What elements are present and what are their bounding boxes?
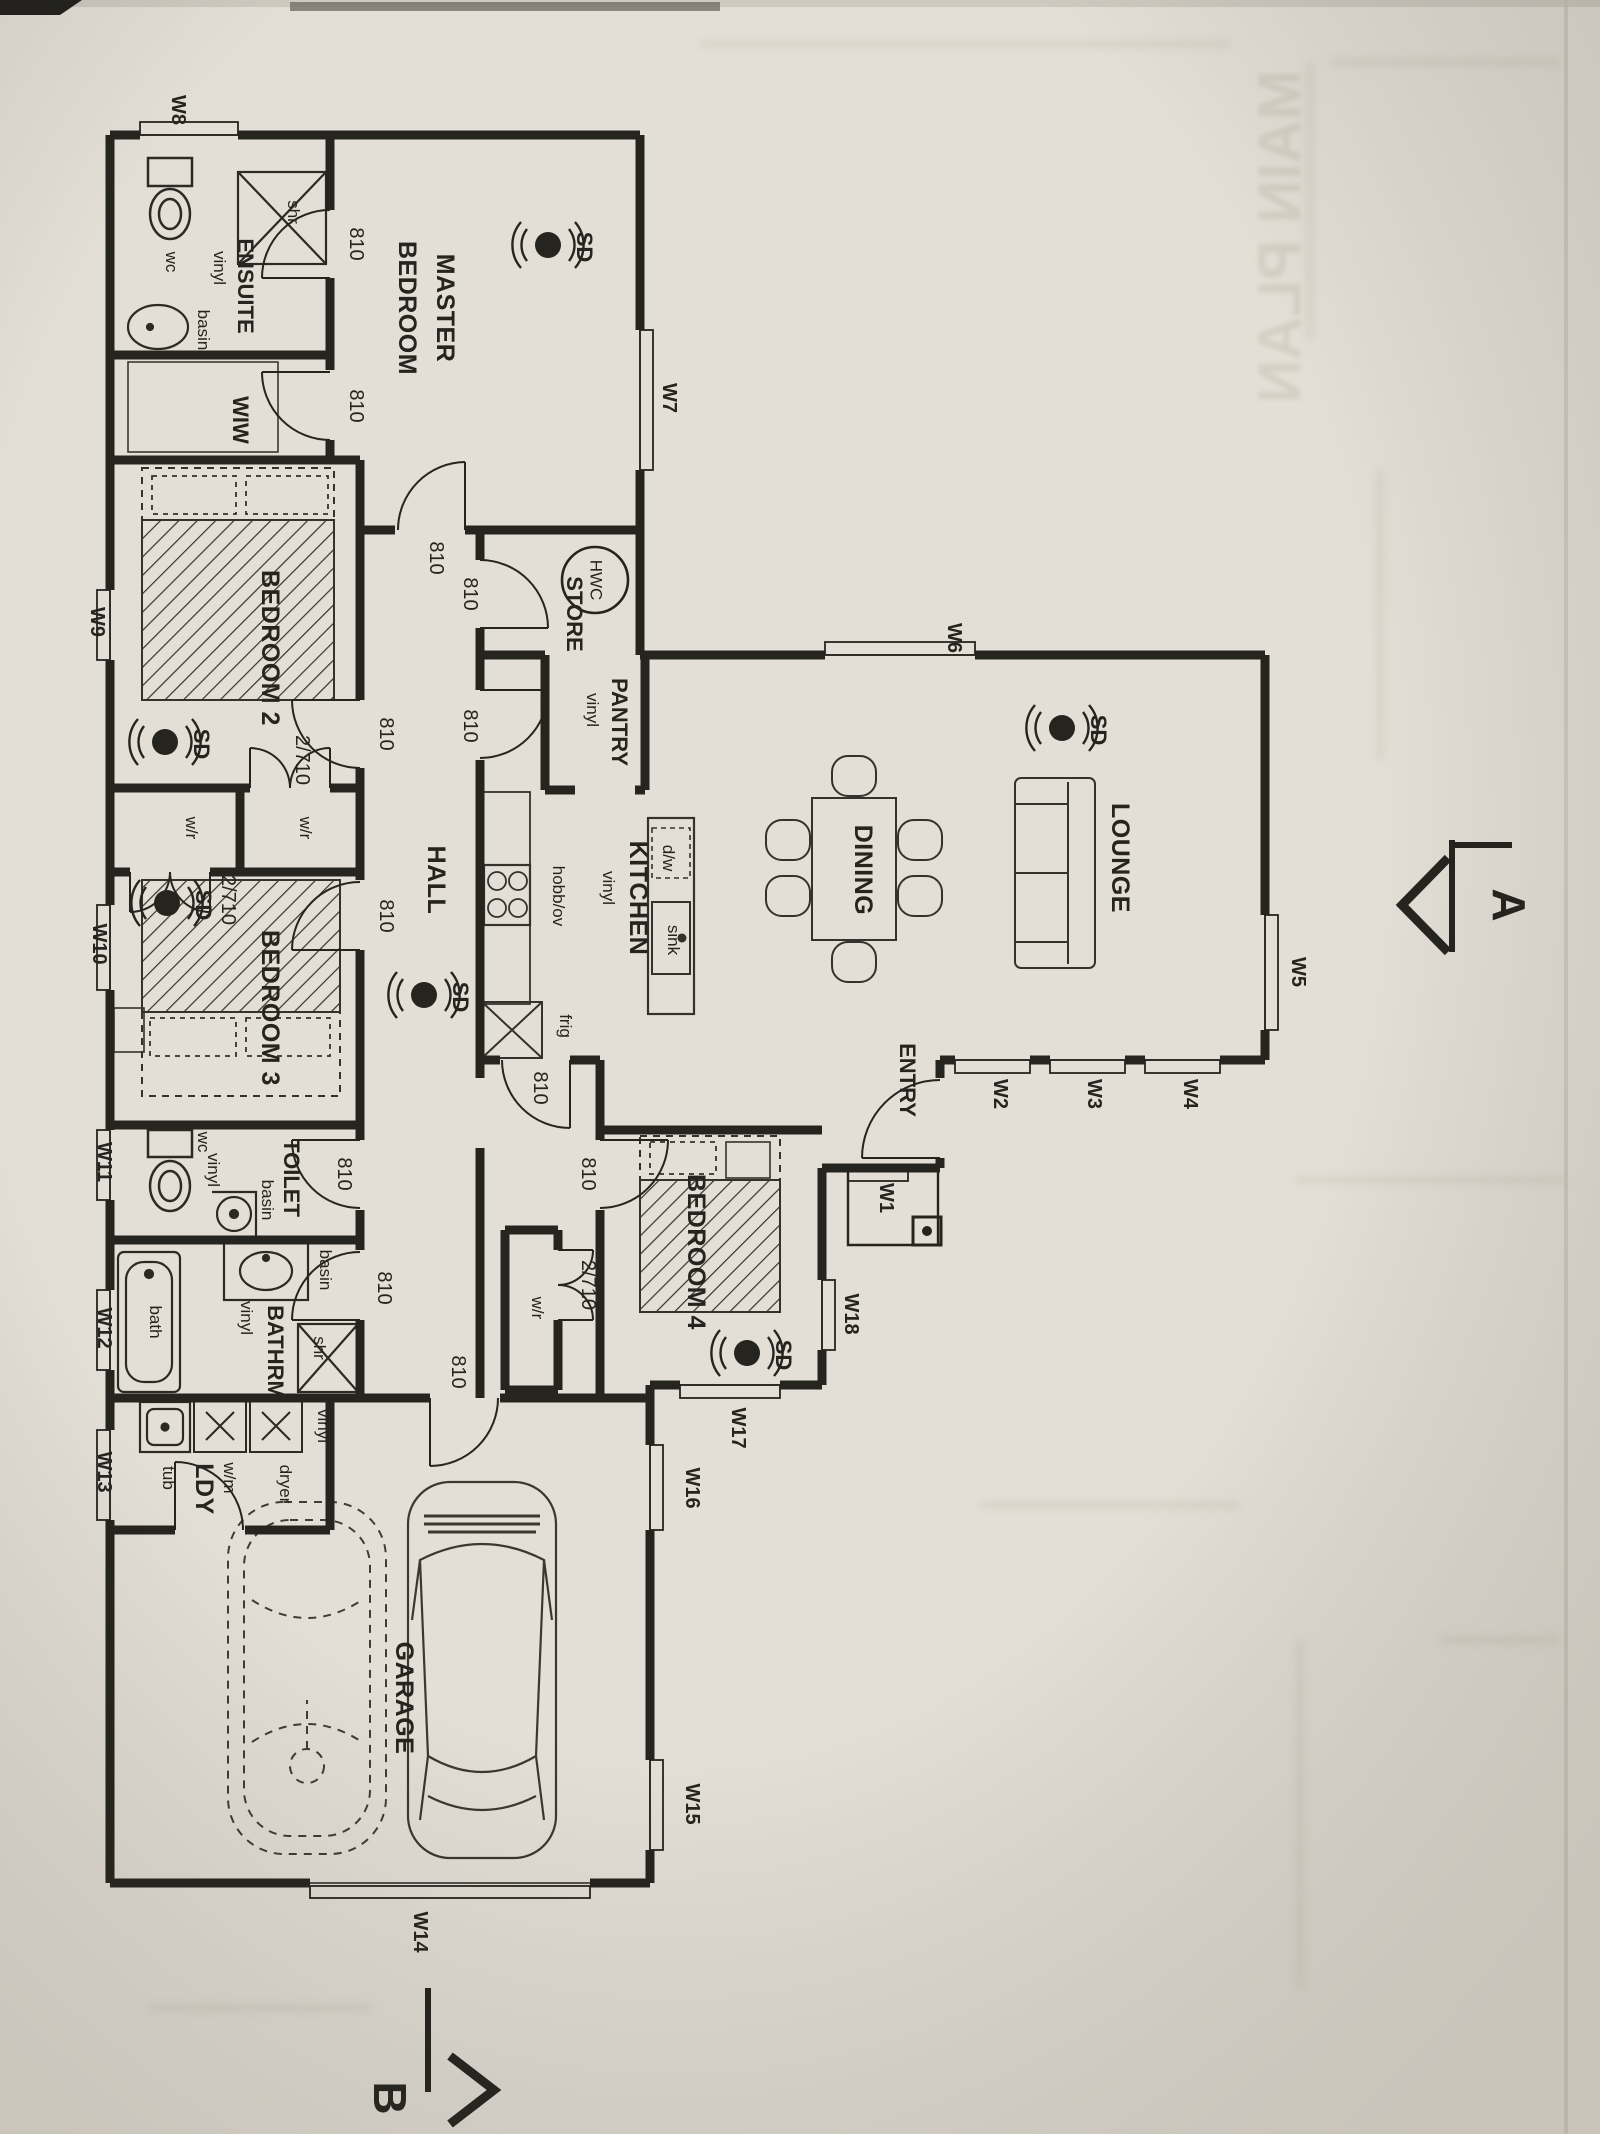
floor-plan-svg: MAIN PLAN HWC (0, 0, 1600, 2134)
floor-plan-photo: MAIN PLAN HWC (0, 0, 1600, 2134)
photo-artifacts (0, 0, 1600, 2134)
